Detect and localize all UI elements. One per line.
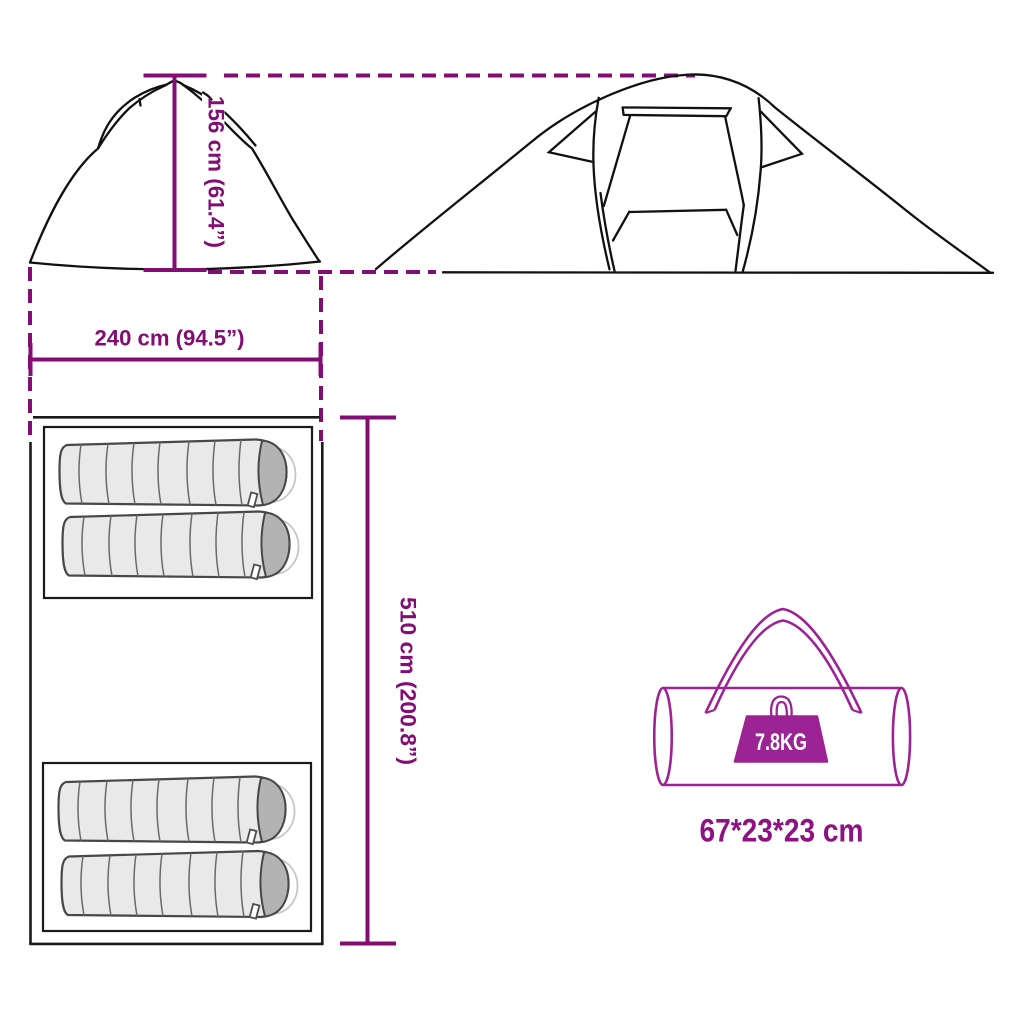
svg-text:7.8KG: 7.8KG	[755, 729, 807, 756]
svg-text:240 cm (94.5”): 240 cm (94.5”)	[95, 326, 245, 351]
svg-text:156 cm (61.4”): 156 cm (61.4”)	[204, 96, 229, 248]
svg-text:510 cm (200.8”): 510 cm (200.8”)	[396, 597, 421, 765]
svg-text:67*23*23 cm: 67*23*23 cm	[700, 813, 864, 849]
